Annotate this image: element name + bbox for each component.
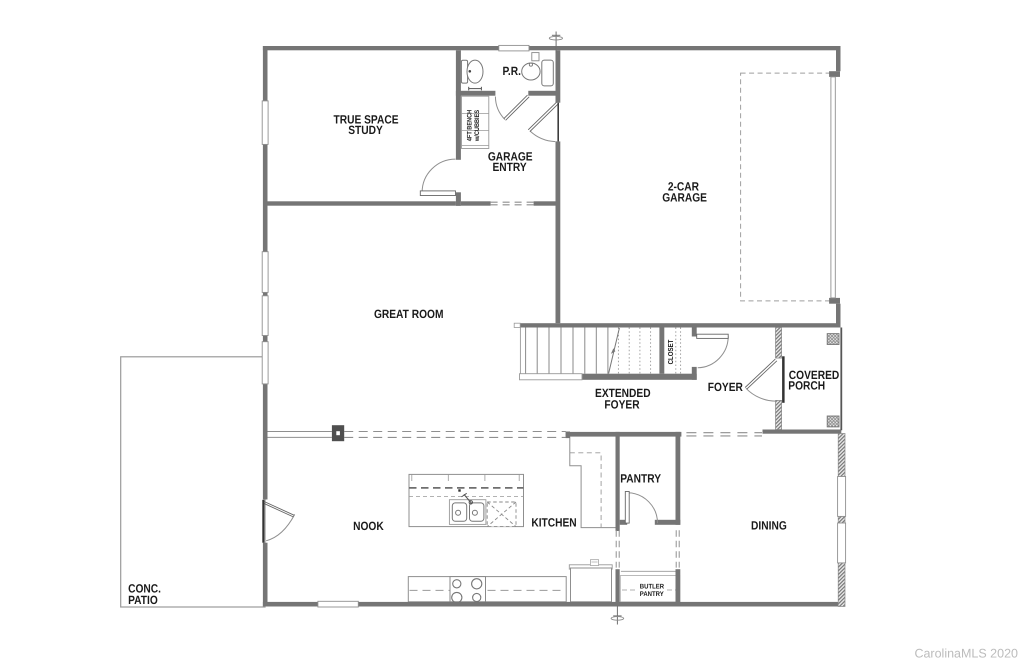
svg-text:CarolinaMLS 2020: CarolinaMLS 2020 [914, 646, 1018, 660]
svg-text:P.R.: P.R. [502, 64, 521, 78]
svg-text:GREAT ROOM: GREAT ROOM [374, 307, 444, 321]
svg-text:DINING: DINING [751, 519, 787, 533]
svg-text:PORCH: PORCH [788, 379, 825, 393]
svg-text:KITCHEN: KITCHEN [531, 516, 576, 530]
svg-text:BUTLER: BUTLER [640, 584, 664, 591]
svg-text:PATIO: PATIO [128, 593, 158, 607]
svg-text:w/CUBBIES: w/CUBBIES [474, 109, 481, 142]
svg-text:CLOSET: CLOSET [666, 339, 675, 364]
svg-text:4FT BENCH: 4FT BENCH [466, 110, 473, 142]
svg-text:PANTRY: PANTRY [640, 591, 664, 598]
svg-text:NOOK: NOOK [353, 519, 384, 533]
svg-text:PANTRY: PANTRY [620, 471, 661, 485]
svg-text:ENTRY: ENTRY [493, 160, 527, 174]
svg-text:FOYER: FOYER [604, 397, 639, 411]
svg-text:GARAGE: GARAGE [662, 190, 707, 204]
svg-text:FOYER: FOYER [708, 380, 743, 394]
svg-text:STUDY: STUDY [348, 123, 383, 137]
